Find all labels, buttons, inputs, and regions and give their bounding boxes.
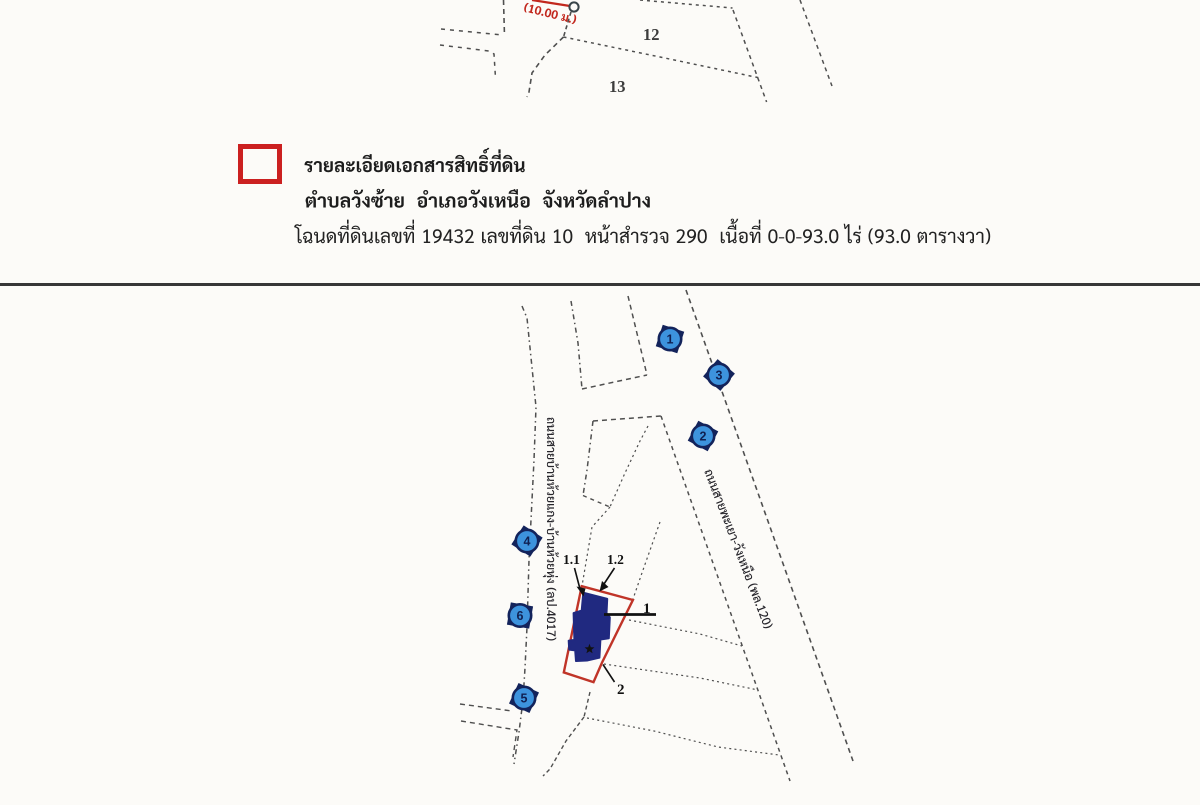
svg-text:5: 5 — [521, 692, 528, 706]
svg-text:1: 1 — [643, 601, 651, 617]
svg-text:3: 3 — [716, 369, 723, 383]
svg-text:1.1: 1.1 — [563, 552, 580, 567]
svg-text:2: 2 — [700, 430, 707, 444]
svg-text:2: 2 — [617, 682, 625, 698]
svg-text:12: 12 — [643, 25, 660, 44]
svg-text:1: 1 — [667, 333, 674, 347]
svg-text:13: 13 — [609, 77, 626, 96]
svg-text:6: 6 — [517, 609, 524, 623]
svg-text:4: 4 — [524, 535, 531, 549]
svg-text:1.2: 1.2 — [607, 552, 624, 567]
